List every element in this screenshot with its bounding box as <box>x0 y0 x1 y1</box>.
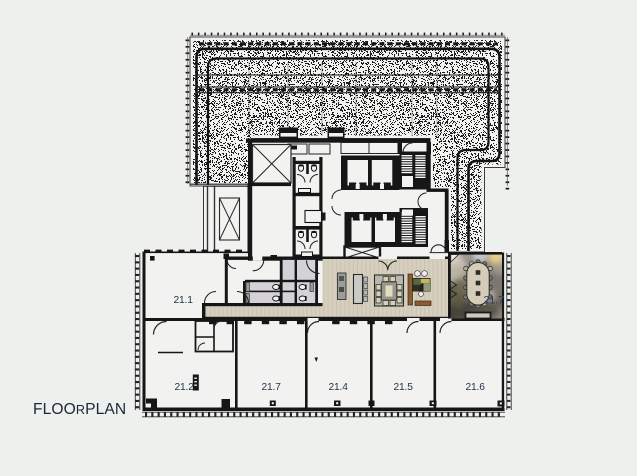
svg-text:FLOORPLAN: FLOORPLAN <box>33 401 126 418</box>
svg-text:21.7: 21.7 <box>484 295 505 307</box>
svg-text:21.5: 21.5 <box>394 382 414 393</box>
svg-text:21.2: 21.2 <box>175 382 195 393</box>
svg-text:21.7: 21.7 <box>262 382 282 393</box>
svg-text:21.1: 21.1 <box>174 295 194 306</box>
svg-text:21.4: 21.4 <box>329 382 349 393</box>
svg-text:21.6: 21.6 <box>466 382 486 393</box>
